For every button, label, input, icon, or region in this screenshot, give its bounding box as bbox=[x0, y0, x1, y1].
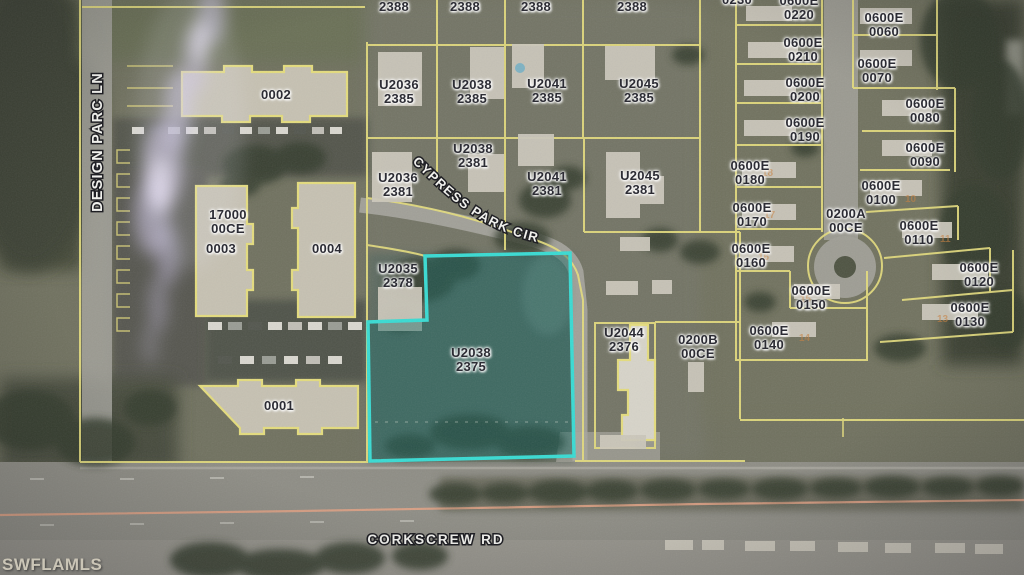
parcel-label-0600e-0170: 0600E0170 bbox=[732, 201, 771, 228]
parcel-label-0600e-0190: 0600E0190 bbox=[785, 116, 824, 143]
highlighted-parcel-label: U20382375 bbox=[451, 346, 491, 373]
parcel-label-0600e-0100: 0600E0100 bbox=[861, 179, 900, 206]
parcel-label-2388-4: 2388 bbox=[617, 0, 647, 14]
parcel-label-0600e-0140: 0600E0140 bbox=[749, 324, 788, 351]
parcel-label-17000-00ce: 1700000CE bbox=[209, 208, 247, 235]
parcel-label-2388-3: 2388 bbox=[521, 0, 551, 14]
parcel-label-0600e-0150: 0600E0150 bbox=[791, 284, 830, 311]
vignette bbox=[0, 0, 1024, 575]
aerial-parcel-map-photo[interactable]: 18 17 16 15 14 10 11 13 DESIGN PARC LN C… bbox=[0, 0, 1024, 575]
parcel-label-u2036-2381: U20362381 bbox=[378, 171, 418, 198]
parcel-label-0230: 0230 bbox=[722, 0, 752, 7]
parcel-label-u2038-2381: U20382381 bbox=[453, 142, 493, 169]
parcel-label-0200b: 0200B00CE bbox=[678, 333, 718, 360]
parcel-label-0004: 0004 bbox=[312, 242, 342, 256]
parcel-label-2388-1: 2388 bbox=[379, 0, 409, 14]
parcel-label-0200a: 0200A00CE bbox=[826, 207, 866, 234]
parcel-label-u2045-2385: U20452385 bbox=[619, 77, 659, 104]
parcel-label-u2036-2385: U20362385 bbox=[379, 78, 419, 105]
parcel-label-0600e-0060: 0600E0060 bbox=[864, 11, 903, 38]
parcel-label-0600e-0180: 0600E0180 bbox=[730, 159, 769, 186]
parcel-label-2388-2: 2388 bbox=[450, 0, 480, 14]
parcel-label-u2038-2385: U20382385 bbox=[452, 78, 492, 105]
parcel-label-0600e-0220: 0600E0220 bbox=[779, 0, 818, 21]
parcel-label-0600e-0200: 0600E0200 bbox=[785, 76, 824, 103]
parcel-label-0001: 0001 bbox=[264, 399, 294, 413]
parcel-label-0600e-0120: 0600E0120 bbox=[959, 261, 998, 288]
parcel-label-0600e-0080: 0600E0080 bbox=[905, 97, 944, 124]
mls-watermark: SWFLAMLS bbox=[2, 555, 102, 575]
parcel-label-u2035-2378: U20352378 bbox=[378, 262, 418, 289]
parcel-label-0600e-0070: 0600E0070 bbox=[857, 57, 896, 84]
parcel-label-u2045-2381: U20452381 bbox=[620, 169, 660, 196]
parcel-label-0600e-0110: 0600E0110 bbox=[899, 219, 938, 246]
parcel-label-0600e-0090: 0600E0090 bbox=[905, 141, 944, 168]
parcel-label-0002: 0002 bbox=[261, 88, 291, 102]
parcel-label-0600e-0210: 0600E0210 bbox=[783, 36, 822, 63]
parcel-label-0600e-0160: 0600E0160 bbox=[731, 242, 770, 269]
parcel-label-u2041-2381: U20412381 bbox=[527, 170, 567, 197]
parcel-label-0600e-0130: 0600E0130 bbox=[950, 301, 989, 328]
parcel-label-u2041-2385: U20412385 bbox=[527, 77, 567, 104]
parcel-label-0003: 0003 bbox=[206, 242, 236, 256]
parcel-label-u2044-2376: U20442376 bbox=[604, 326, 644, 353]
aerial-imagery: 18 17 16 15 14 10 11 13 DESIGN PARC LN C… bbox=[0, 0, 1024, 575]
